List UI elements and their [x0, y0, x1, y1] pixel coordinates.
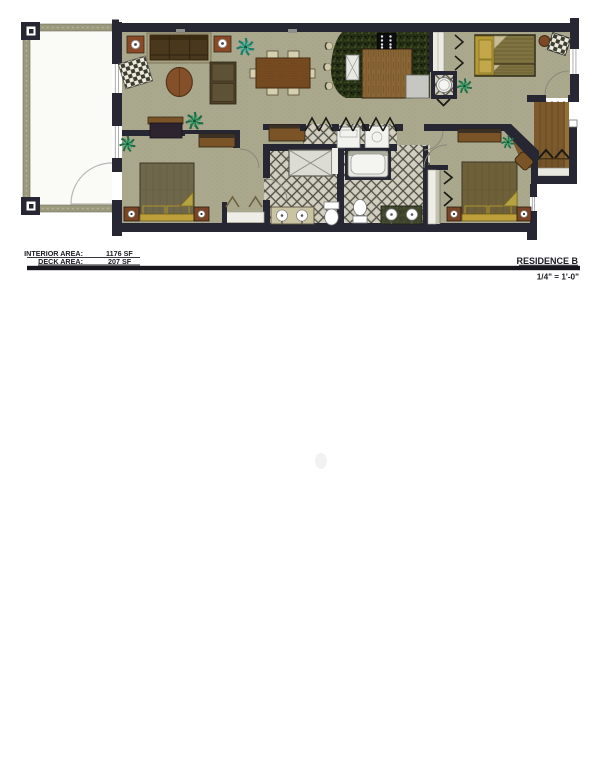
svg-text:1/4" = 1'-0": 1/4" = 1'-0"	[537, 273, 579, 282]
svg-text:RESIDENCE B: RESIDENCE B	[516, 256, 578, 266]
